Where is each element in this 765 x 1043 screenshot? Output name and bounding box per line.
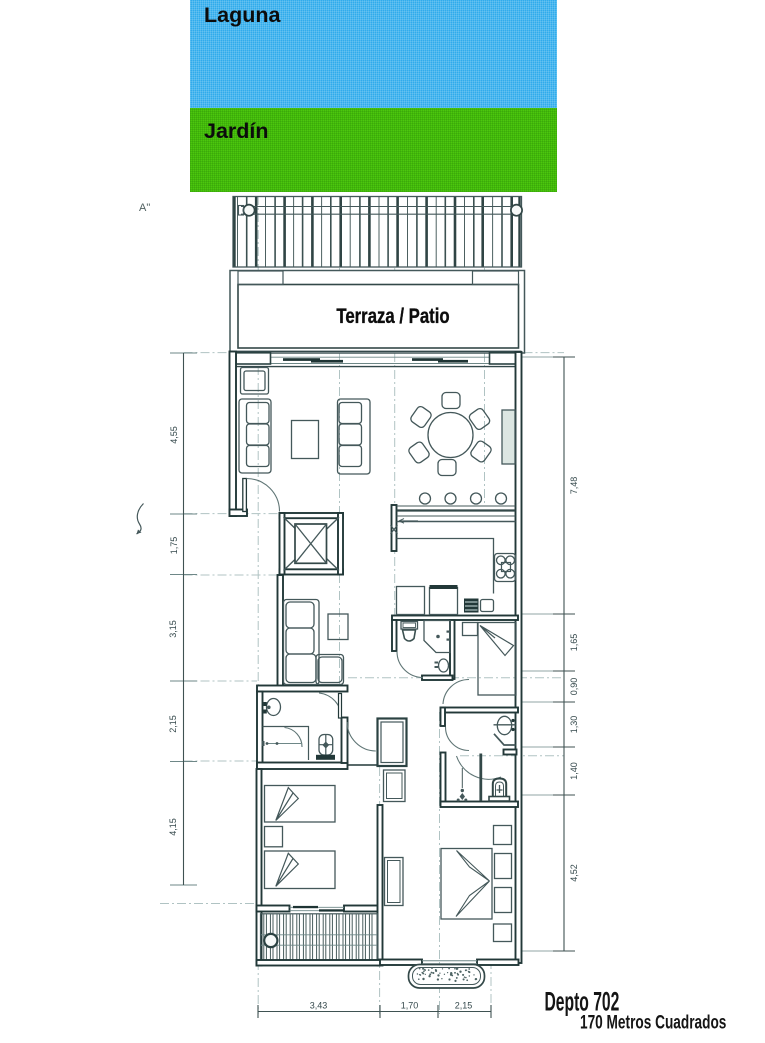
svg-text:4,15: 4,15: [168, 818, 178, 836]
svg-text:3,15: 3,15: [168, 620, 178, 638]
svg-text:4,55: 4,55: [169, 426, 179, 444]
svg-text:1,65: 1,65: [569, 634, 579, 652]
svg-text:1,30: 1,30: [569, 716, 579, 734]
svg-text:1,75: 1,75: [169, 537, 179, 555]
svg-text:2,15: 2,15: [455, 1001, 473, 1011]
svg-text:A": A": [139, 202, 150, 214]
svg-text:3,43: 3,43: [310, 1001, 328, 1011]
svg-text:2,15: 2,15: [168, 715, 178, 733]
svg-text:Terraza / Patio: Terraza / Patio: [336, 305, 450, 328]
svg-text:0,90: 0,90: [569, 678, 579, 696]
svg-text:170 Metros Cuadrados: 170 Metros Cuadrados: [580, 1011, 726, 1033]
svg-text:1,70: 1,70: [401, 1001, 419, 1011]
svg-text:1,40: 1,40: [569, 762, 579, 780]
svg-text:4,52: 4,52: [569, 864, 579, 882]
svg-text:7,48: 7,48: [569, 477, 579, 495]
